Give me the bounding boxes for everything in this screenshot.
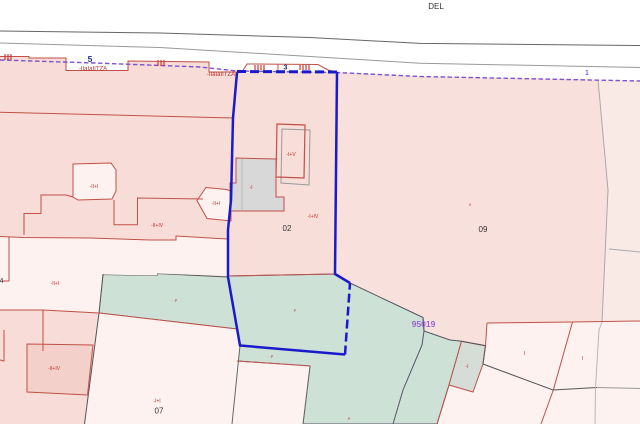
svg-text:-I+I: -I+I (153, 399, 160, 405)
svg-text:-II+I: -II+I (212, 201, 221, 207)
svg-text:3: 3 (284, 65, 288, 72)
svg-text:P: P (271, 354, 274, 359)
svg-text:-II+I: -II+I (51, 281, 60, 287)
svg-text:02: 02 (283, 224, 292, 233)
svg-text:-IIaIaIITZA: -IIaIaIITZA (79, 67, 107, 73)
svg-text:09: 09 (479, 225, 488, 234)
svg-text:-I+V: -I+V (286, 152, 296, 158)
svg-text:P: P (294, 308, 297, 313)
svg-text:P: P (348, 416, 351, 421)
svg-text:I: I (582, 356, 583, 362)
svg-text:-II+IV: -II+IV (151, 223, 164, 229)
svg-text:95019: 95019 (412, 319, 436, 329)
svg-text:P: P (175, 298, 178, 303)
svg-text:-IIaIaIITZA: -IIaIaIITZA (207, 72, 235, 78)
svg-text:5: 5 (88, 54, 93, 64)
svg-text:-II+I: -II+I (90, 184, 99, 190)
svg-text:DEL: DEL (428, 2, 444, 11)
svg-text:-I+IV: -I+IV (308, 214, 319, 220)
svg-text:4: 4 (0, 278, 4, 285)
svg-text:II: II (469, 202, 471, 207)
svg-text:-I: -I (465, 364, 468, 370)
svg-text:I: I (524, 351, 525, 357)
svg-text:1: 1 (585, 68, 589, 77)
svg-text:-I: -I (249, 185, 252, 191)
svg-text:07: 07 (155, 407, 164, 416)
svg-text:-II+IV: -II+IV (48, 366, 61, 372)
